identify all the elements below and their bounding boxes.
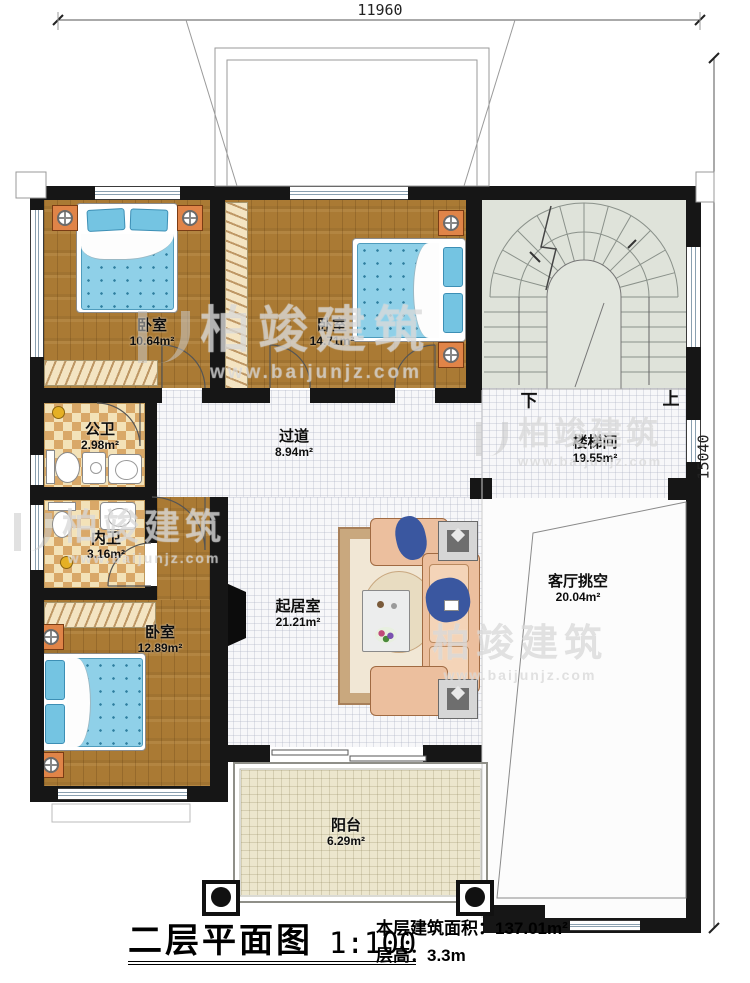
- wall-bedroom3-top: [30, 588, 157, 600]
- shower-tray-icon: [82, 452, 106, 484]
- dimension-top: 11960: [340, 1, 420, 19]
- dimension-right: 15040: [695, 434, 713, 479]
- side-table-diamond: [451, 686, 465, 700]
- room-label-public-bath: 公卫 2.98m²: [81, 422, 119, 452]
- shower-drain-icon: [90, 462, 102, 474]
- room-label-stairwell: 楼梯间 19.55m²: [572, 435, 617, 465]
- wall-bedrooms-bottom: [435, 388, 466, 403]
- sink-basin-icon: [108, 508, 131, 527]
- nightstand: [52, 205, 78, 231]
- tv-icon: [226, 583, 246, 647]
- room-name: 公卫: [81, 422, 119, 439]
- room-name: 卧室: [138, 625, 183, 642]
- lamp-icon: [43, 757, 59, 773]
- bed-bedroom-3: [40, 653, 146, 751]
- room-label-inner-bath: 内卫 3.16m²: [87, 531, 125, 561]
- wall-void-corner: [668, 478, 701, 500]
- lamp-icon: [43, 629, 59, 645]
- floor-height-value: 3.3m: [427, 946, 466, 965]
- plan-info-block: 本层建筑面积：137.01m² 层高：3.3m: [376, 915, 568, 969]
- floor-area-line: 本层建筑面积：137.01m²: [376, 915, 568, 942]
- room-area: 20.04m²: [548, 591, 608, 604]
- side-table-top: [447, 688, 469, 710]
- room-label-bedroom-1: 卧室 10.64m²: [130, 318, 175, 348]
- room-area: 8.94m²: [275, 446, 313, 459]
- floor-stairwell: [482, 200, 686, 390]
- bed-bedroom-2: [352, 238, 466, 342]
- sheet-fold: [413, 243, 439, 338]
- wall-living-bottom: [423, 745, 482, 762]
- column: [202, 880, 240, 916]
- room-name: 阳台: [327, 818, 365, 835]
- room-label-living-room: 起居室 21.21m²: [275, 599, 320, 629]
- room-name: 楼梯间: [572, 435, 617, 452]
- side-table-diamond: [451, 528, 465, 542]
- lamp-icon: [57, 210, 73, 226]
- floor-drain-icon: [60, 556, 73, 569]
- column: [456, 880, 494, 916]
- stair-up-label: 上: [663, 385, 680, 410]
- floor-living-void: [482, 498, 686, 918]
- title-block: 二层平面图 1:100: [128, 924, 416, 965]
- wall-bedrooms-bottom: [30, 388, 162, 403]
- wardrobe-bedroom-1: [44, 360, 158, 386]
- floor-vestibule: [157, 490, 210, 602]
- nightstand: [438, 210, 464, 236]
- sink-icon: [108, 454, 142, 484]
- window-bedroom1-top: [95, 186, 180, 200]
- room-area: 10.64m²: [130, 335, 175, 348]
- table-decor-icon: [377, 601, 384, 608]
- wall-void-corner: [470, 478, 492, 499]
- room-area: 14.71m²: [310, 335, 355, 348]
- pillow: [86, 208, 125, 232]
- nightstand: [438, 342, 464, 368]
- side-table: [438, 679, 478, 719]
- lamp-icon: [443, 347, 459, 363]
- room-area: 2.98m²: [81, 439, 119, 452]
- window-bedroom2-top: [290, 186, 408, 200]
- lamp-icon: [182, 210, 198, 226]
- floor-area-label: 本层建筑面积：: [376, 919, 495, 938]
- toilet-icon: [55, 452, 80, 483]
- pillow: [130, 208, 169, 231]
- room-area: 6.29m²: [327, 835, 365, 848]
- wall-living-bottom: [218, 745, 270, 762]
- pillow: [45, 704, 65, 744]
- bed-bedroom-1: [76, 203, 178, 313]
- wall-bedroom1-bedroom2: [210, 186, 225, 403]
- toilet-icon: [52, 511, 72, 538]
- column-core: [465, 887, 485, 907]
- room-area: 19.55m²: [572, 452, 617, 465]
- pillow: [45, 660, 65, 700]
- room-label-hallway: 过道 8.94m²: [275, 429, 313, 459]
- side-table: [438, 521, 478, 561]
- window-void-bottom: [570, 920, 640, 931]
- table-decor-icon: [391, 603, 397, 609]
- toilet-tank-icon: [46, 450, 55, 484]
- wall-bedrooms-bottom: [202, 388, 270, 403]
- room-label-living-void: 客厅挑空 20.04m²: [548, 574, 608, 604]
- wall-bath-right: [145, 390, 157, 543]
- room-name: 卧室: [310, 318, 355, 335]
- window-bedroom3-bottom: [58, 788, 187, 800]
- room-area: 21.21m²: [275, 616, 320, 629]
- room-label-bedroom-3: 卧室 12.89m²: [138, 625, 183, 655]
- window-bedroom1-left: [30, 210, 44, 357]
- room-name: 卧室: [130, 318, 175, 335]
- floor-height-label: 层高：: [376, 946, 427, 965]
- wardrobe-bedroom-2: [225, 202, 248, 398]
- wall-bath-divider: [30, 487, 145, 500]
- lamp-icon: [443, 215, 459, 231]
- floor-height-line: 层高：3.3m: [376, 942, 568, 969]
- room-name: 过道: [275, 429, 313, 446]
- room-area: 3.16m²: [87, 548, 125, 561]
- pillow: [443, 247, 463, 287]
- wall-bedrooms-bottom: [310, 388, 395, 403]
- floor-hallway: [145, 390, 482, 497]
- sink-basin-icon: [115, 460, 138, 480]
- stair-down-label: 下: [521, 387, 538, 412]
- floor-area-value: 137.01m²: [495, 919, 568, 938]
- pillow: [443, 293, 463, 333]
- window-inner-bath: [30, 505, 44, 570]
- room-label-balcony: 阳台 6.29m²: [327, 818, 365, 848]
- column-core: [211, 887, 231, 907]
- side-table-top: [447, 530, 469, 552]
- sink-icon: [100, 502, 136, 530]
- floor-plan-canvas: 卧室 10.64m² 卧室 14.71m² 楼梯间 19.55m² 公卫 2.9…: [0, 0, 750, 983]
- window-stairs-upper: [686, 247, 701, 347]
- room-name: 内卫: [87, 531, 125, 548]
- plan-title: 二层平面图: [128, 924, 313, 958]
- room-area: 12.89m²: [138, 642, 183, 655]
- room-name: 起居室: [275, 599, 320, 616]
- nightstand: [177, 205, 203, 231]
- laptop-icon: [444, 600, 459, 611]
- wall-bedroom2-stairs: [466, 186, 482, 403]
- room-name: 客厅挑空: [548, 574, 608, 591]
- armchair-bottom: [370, 666, 448, 716]
- window-public-bath: [30, 455, 44, 485]
- floor-drain-icon: [52, 406, 65, 419]
- room-label-bedroom-2: 卧室 14.71m²: [310, 318, 355, 348]
- toilet-tank-icon: [48, 502, 76, 511]
- coffee-table: [362, 590, 410, 652]
- flowers-icon: [375, 627, 397, 643]
